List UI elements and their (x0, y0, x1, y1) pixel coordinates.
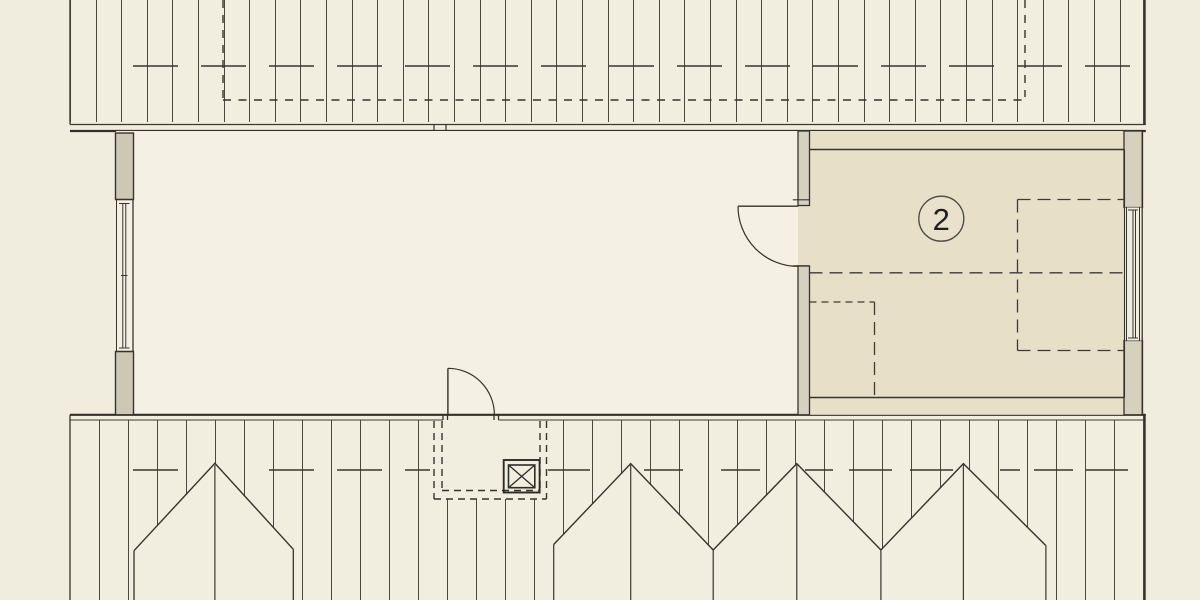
svg-text:2: 2 (933, 202, 950, 237)
